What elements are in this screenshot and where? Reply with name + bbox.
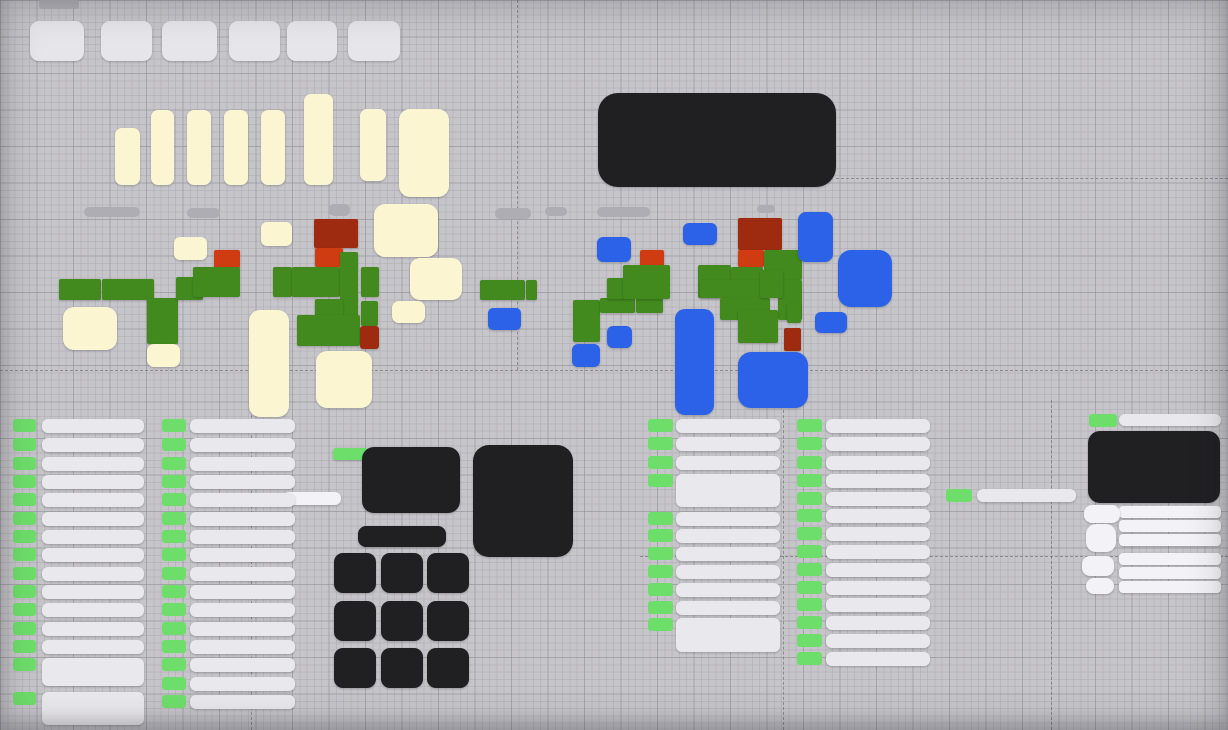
node-red-b-1[interactable] bbox=[738, 250, 764, 267]
list-column-3-bar-8[interactable] bbox=[676, 565, 780, 579]
list-column-3-chip-6[interactable] bbox=[648, 529, 673, 542]
label-smudge-2 bbox=[187, 208, 220, 218]
list-column-4-bar-1[interactable] bbox=[826, 419, 930, 433]
node-green-a-1a[interactable] bbox=[59, 279, 101, 300]
list-column-2-bar-10[interactable] bbox=[190, 585, 295, 599]
node-blue-b-7[interactable] bbox=[607, 326, 632, 348]
list-column-2-chip-9[interactable] bbox=[162, 567, 186, 580]
list-column-1-chip-14[interactable] bbox=[13, 658, 36, 671]
list-column-1-bar-3[interactable] bbox=[42, 457, 144, 471]
node-blue-b-6[interactable] bbox=[572, 344, 600, 367]
list-column-2-bar-9[interactable] bbox=[190, 567, 295, 581]
node-blue-b-8[interactable] bbox=[675, 309, 714, 415]
list-column-4-chip-10[interactable] bbox=[797, 581, 822, 594]
list-column-2-bar-5[interactable] bbox=[190, 493, 295, 507]
node-green-b-13[interactable] bbox=[760, 270, 783, 298]
top-clipped-tab bbox=[39, 0, 79, 9]
node-red-b-top[interactable] bbox=[738, 218, 782, 250]
list-column-1-chip-3[interactable] bbox=[13, 457, 36, 470]
list-column-1-chip-10[interactable] bbox=[13, 585, 36, 598]
list-column-2-chip-8[interactable] bbox=[162, 548, 186, 561]
keypad-key-3[interactable] bbox=[427, 553, 469, 593]
cream-bar-6[interactable] bbox=[304, 94, 333, 185]
node-green-b-1[interactable] bbox=[573, 300, 600, 342]
node-blue-b-1[interactable] bbox=[597, 237, 631, 262]
keypad-key-6[interactable] bbox=[427, 601, 469, 641]
keypad-key-4[interactable] bbox=[334, 601, 376, 641]
cream-bar-3[interactable] bbox=[187, 110, 211, 185]
node-blue-b-4[interactable] bbox=[838, 250, 892, 307]
list-column-4-chip-7[interactable] bbox=[797, 527, 822, 540]
node-green-a-7[interactable] bbox=[361, 267, 379, 297]
list-column-4-chip-3[interactable] bbox=[797, 456, 822, 469]
list-column-3-bar-2[interactable] bbox=[676, 437, 780, 451]
list-connector-row-bar-1[interactable] bbox=[977, 489, 1076, 502]
list-column-2-bar-7[interactable] bbox=[190, 530, 295, 544]
right-panel-row-6[interactable] bbox=[1119, 581, 1221, 593]
list-column-2-chip-13[interactable] bbox=[162, 640, 186, 653]
list-column-2-bar-16[interactable] bbox=[190, 695, 295, 709]
list-column-1-chip-6[interactable] bbox=[13, 512, 36, 525]
list-column-3-bar-3[interactable] bbox=[676, 456, 780, 470]
keypad-panel[interactable] bbox=[473, 445, 573, 557]
node-red-b-3[interactable] bbox=[784, 328, 801, 351]
sticky-cream-9[interactable] bbox=[63, 307, 117, 350]
right-panel-row-1[interactable] bbox=[1119, 506, 1221, 518]
list-column-4-bar-2[interactable] bbox=[826, 437, 930, 451]
node-green-a-1b[interactable] bbox=[102, 279, 154, 300]
label-smudge-4 bbox=[495, 208, 531, 219]
list-column-1-bar-6[interactable] bbox=[42, 512, 144, 526]
list-column-2-chip-4[interactable] bbox=[162, 475, 186, 488]
cream-bar-2[interactable] bbox=[151, 110, 174, 185]
canvas-workspace[interactable] bbox=[0, 0, 1228, 730]
list-connector-row-chip-1[interactable] bbox=[946, 489, 972, 502]
top-key-5[interactable] bbox=[287, 21, 337, 61]
node-green-b-12[interactable] bbox=[787, 303, 801, 323]
sticky-cream-3[interactable] bbox=[261, 222, 292, 246]
list-column-2-chip-7[interactable] bbox=[162, 530, 186, 543]
keypad-key-9[interactable] bbox=[427, 648, 469, 688]
list-column-1-bar-9[interactable] bbox=[42, 567, 144, 581]
list-column-1-chip-12[interactable] bbox=[13, 622, 36, 635]
node-blue-b-9[interactable] bbox=[738, 352, 808, 408]
list-column-3-chip-7[interactable] bbox=[648, 547, 673, 560]
node-green-a-10[interactable] bbox=[297, 315, 360, 346]
label-smudge-5 bbox=[545, 207, 567, 216]
list-column-1-bar-13[interactable] bbox=[42, 640, 144, 654]
guide-line-1 bbox=[0, 370, 1228, 371]
guide-line-2 bbox=[836, 178, 1228, 179]
right-panel-blob-2 bbox=[1086, 524, 1116, 552]
list-column-3-bar-5[interactable] bbox=[676, 512, 780, 526]
list-column-4-bar-14[interactable] bbox=[826, 652, 930, 666]
list-column-2-chip-1[interactable] bbox=[162, 419, 186, 432]
node-green-a-9[interactable] bbox=[361, 301, 378, 326]
keypad-key-5[interactable] bbox=[381, 601, 423, 641]
list-column-2-bar-6[interactable] bbox=[190, 512, 295, 526]
list-column-4-chip-6[interactable] bbox=[797, 509, 822, 522]
list-column-1-chip-4[interactable] bbox=[13, 475, 36, 488]
black-panel-top[interactable] bbox=[598, 93, 836, 187]
list-column-3-bar-1[interactable] bbox=[676, 419, 780, 433]
guide-line-6 bbox=[783, 405, 784, 730]
list-column-3-chip-4[interactable] bbox=[648, 474, 673, 487]
list-column-1-bar-10[interactable] bbox=[42, 585, 144, 599]
sticky-cream-6[interactable] bbox=[392, 301, 425, 323]
list-column-4-bar-5[interactable] bbox=[826, 492, 930, 506]
list-column-1-chip-9[interactable] bbox=[13, 567, 36, 580]
node-blue-b-5[interactable] bbox=[815, 312, 847, 333]
list-column-1-chip-8[interactable] bbox=[13, 548, 36, 561]
list-column-2-bar-12[interactable] bbox=[190, 622, 295, 636]
keypad-key-2[interactable] bbox=[381, 553, 423, 593]
cream-bar-4[interactable] bbox=[224, 110, 248, 185]
list-column-4-chip-2[interactable] bbox=[797, 437, 822, 450]
list-column-3-chip-8[interactable] bbox=[648, 565, 673, 578]
node-green-b-2b[interactable] bbox=[636, 298, 663, 313]
list-column-2-chip-14[interactable] bbox=[162, 658, 186, 671]
right-panel-blob-1 bbox=[1084, 505, 1120, 523]
list-column-4-chip-1[interactable] bbox=[797, 419, 822, 432]
list-column-2-chip-11[interactable] bbox=[162, 603, 186, 616]
right-panel-black[interactable] bbox=[1088, 431, 1220, 503]
sticky-cream-8[interactable] bbox=[316, 351, 372, 408]
list-column-1-bar-15[interactable] bbox=[42, 692, 144, 725]
list-column-3-chip-10[interactable] bbox=[648, 601, 673, 614]
node-green-b-11[interactable] bbox=[738, 310, 778, 343]
list-column-4-bar-3[interactable] bbox=[826, 456, 930, 470]
node-blue-b-3[interactable] bbox=[798, 212, 833, 262]
list-column-1-chip-7[interactable] bbox=[13, 530, 36, 543]
list-column-3-bar-4[interactable] bbox=[676, 474, 780, 507]
list-column-4-chip-4[interactable] bbox=[797, 474, 822, 487]
label-smudge-1 bbox=[84, 207, 140, 217]
list-column-3-chip-2[interactable] bbox=[648, 437, 673, 450]
node-red-a-1[interactable] bbox=[315, 248, 343, 267]
list-column-4-chip-13[interactable] bbox=[797, 634, 822, 647]
node-blue-b-2[interactable] bbox=[683, 223, 717, 245]
right-panel-blob-3 bbox=[1082, 556, 1114, 576]
cream-bar-1[interactable] bbox=[115, 128, 140, 185]
list-column-1-bar-14[interactable] bbox=[42, 658, 144, 686]
list-column-1-bar-1[interactable] bbox=[42, 419, 144, 433]
keypad-key-8[interactable] bbox=[381, 648, 423, 688]
list-column-2-chip-16[interactable] bbox=[162, 695, 186, 708]
list-column-4-chip-12[interactable] bbox=[797, 616, 822, 629]
sticky-cream-2[interactable] bbox=[174, 237, 207, 260]
keypad-key-7[interactable] bbox=[334, 648, 376, 688]
list-column-3-chip-1[interactable] bbox=[648, 419, 673, 432]
right-panel-header-chip-1[interactable] bbox=[1089, 414, 1117, 427]
node-red-a-2[interactable] bbox=[214, 250, 240, 268]
right-panel-row-3[interactable] bbox=[1119, 534, 1221, 546]
node-blue-m-1[interactable] bbox=[488, 308, 521, 330]
list-column-1-chip-13[interactable] bbox=[13, 640, 36, 653]
list-column-2-chip-3[interactable] bbox=[162, 457, 186, 470]
cream-bar-7[interactable] bbox=[360, 109, 386, 181]
node-green-a-4[interactable] bbox=[193, 267, 240, 297]
list-column-2-bar-13[interactable] bbox=[190, 640, 295, 654]
top-key-4[interactable] bbox=[229, 21, 280, 61]
list-column-3-chip-3[interactable] bbox=[648, 456, 673, 469]
list-column-3-chip-5[interactable] bbox=[648, 512, 673, 525]
keypad-display[interactable] bbox=[362, 447, 460, 513]
list-column-2-chip-10[interactable] bbox=[162, 585, 186, 598]
list-column-1-bar-7[interactable] bbox=[42, 530, 144, 544]
right-panel-row-2[interactable] bbox=[1119, 520, 1221, 532]
node-green-a-5a[interactable] bbox=[273, 267, 292, 297]
list-column-3-bar-6[interactable] bbox=[676, 529, 780, 543]
label-smudge-3 bbox=[329, 204, 350, 216]
list-column-1-chip-1[interactable] bbox=[13, 419, 36, 432]
list-column-4-chip-9[interactable] bbox=[797, 563, 822, 576]
node-green-a-2[interactable] bbox=[147, 298, 178, 344]
node-green-b-2a[interactable] bbox=[600, 298, 635, 313]
node-red-a-top[interactable] bbox=[314, 219, 358, 248]
cream-bar-5[interactable] bbox=[261, 110, 285, 185]
list-column-4-chip-5[interactable] bbox=[797, 492, 822, 505]
top-key-6[interactable] bbox=[348, 21, 400, 61]
list-column-4-bar-8[interactable] bbox=[826, 545, 930, 559]
right-panel-header-bar-1[interactable] bbox=[1119, 414, 1221, 426]
right-panel-row-4[interactable] bbox=[1119, 553, 1221, 565]
top-key-3[interactable] bbox=[162, 21, 217, 61]
list-column-4-bar-13[interactable] bbox=[826, 634, 930, 648]
node-green-m-1a[interactable] bbox=[480, 280, 525, 300]
list-column-4-bar-9[interactable] bbox=[826, 563, 930, 577]
sticky-cream-5[interactable] bbox=[410, 258, 462, 300]
list-column-2-bar-4[interactable] bbox=[190, 475, 295, 489]
list-column-1-chip-11[interactable] bbox=[13, 603, 36, 616]
list-column-3-bar-11[interactable] bbox=[676, 618, 780, 652]
list-column-1-bar-4[interactable] bbox=[42, 475, 144, 489]
node-green-b-3[interactable] bbox=[607, 278, 624, 299]
list-column-4-bar-7[interactable] bbox=[826, 527, 930, 541]
list-column-2-bar-2[interactable] bbox=[190, 438, 295, 452]
list-column-1-bar-8[interactable] bbox=[42, 548, 144, 562]
list-column-2-bar-8[interactable] bbox=[190, 548, 295, 562]
right-panel-row-5[interactable] bbox=[1119, 567, 1221, 579]
node-red-a-3[interactable] bbox=[360, 326, 379, 349]
list-column-2-bar-3[interactable] bbox=[190, 457, 295, 471]
sticky-cream-4[interactable] bbox=[374, 204, 438, 257]
cream-panel-1[interactable] bbox=[399, 109, 449, 197]
guide-line-7 bbox=[1051, 400, 1052, 730]
top-key-2[interactable] bbox=[101, 21, 152, 61]
node-green-b-4[interactable] bbox=[623, 265, 670, 299]
list-column-3-bar-7[interactable] bbox=[676, 547, 780, 561]
list-column-2-chip-15[interactable] bbox=[162, 677, 186, 690]
list-column-2-bar-14[interactable] bbox=[190, 658, 295, 672]
list-column-1-bar-11[interactable] bbox=[42, 603, 144, 617]
list-column-4-bar-6[interactable] bbox=[826, 509, 930, 523]
list-column-2-bar-1[interactable] bbox=[190, 419, 295, 433]
list-column-2-chip-6[interactable] bbox=[162, 512, 186, 525]
list-column-1-bar-12[interactable] bbox=[42, 622, 144, 636]
node-green-m-1b[interactable] bbox=[526, 280, 537, 300]
list-column-3-chip-11[interactable] bbox=[648, 618, 673, 631]
sticky-cream-7[interactable] bbox=[249, 310, 289, 417]
list-column-4-chip-11[interactable] bbox=[797, 598, 822, 611]
list-column-3-chip-9[interactable] bbox=[648, 583, 673, 596]
top-key-1[interactable] bbox=[30, 21, 84, 61]
node-green-a-5b[interactable] bbox=[292, 267, 340, 297]
list-column-2-chip-5[interactable] bbox=[162, 493, 186, 506]
list-column-2-bar-11[interactable] bbox=[190, 603, 295, 617]
list-column-1-bar-5[interactable] bbox=[42, 493, 144, 507]
list-column-2-chip-2[interactable] bbox=[162, 438, 186, 451]
list-column-4-bar-10[interactable] bbox=[826, 581, 930, 595]
list-column-4-chip-14[interactable] bbox=[797, 652, 822, 665]
keypad-bar[interactable] bbox=[358, 526, 446, 547]
label-smudge-7 bbox=[757, 205, 775, 213]
list-column-2-bar-15[interactable] bbox=[190, 677, 295, 691]
right-panel-blob-4 bbox=[1086, 578, 1114, 594]
list-column-1-chip-15[interactable] bbox=[13, 692, 36, 705]
list-column-1-chip-2[interactable] bbox=[13, 438, 36, 451]
list-column-4-bar-12[interactable] bbox=[826, 616, 930, 630]
list-column-2-chip-12[interactable] bbox=[162, 622, 186, 635]
list-column-3-bar-9[interactable] bbox=[676, 583, 780, 597]
list-column-4-bar-11[interactable] bbox=[826, 598, 930, 612]
sticky-cream-10[interactable] bbox=[147, 344, 180, 367]
list-column-4-bar-4[interactable] bbox=[826, 474, 930, 488]
list-column-4-chip-8[interactable] bbox=[797, 545, 822, 558]
label-smudge-6 bbox=[597, 207, 650, 217]
list-column-3-bar-10[interactable] bbox=[676, 601, 780, 615]
keypad-key-1[interactable] bbox=[334, 553, 376, 593]
list-column-1-bar-2[interactable] bbox=[42, 438, 144, 452]
list-column-1-chip-5[interactable] bbox=[13, 493, 36, 506]
